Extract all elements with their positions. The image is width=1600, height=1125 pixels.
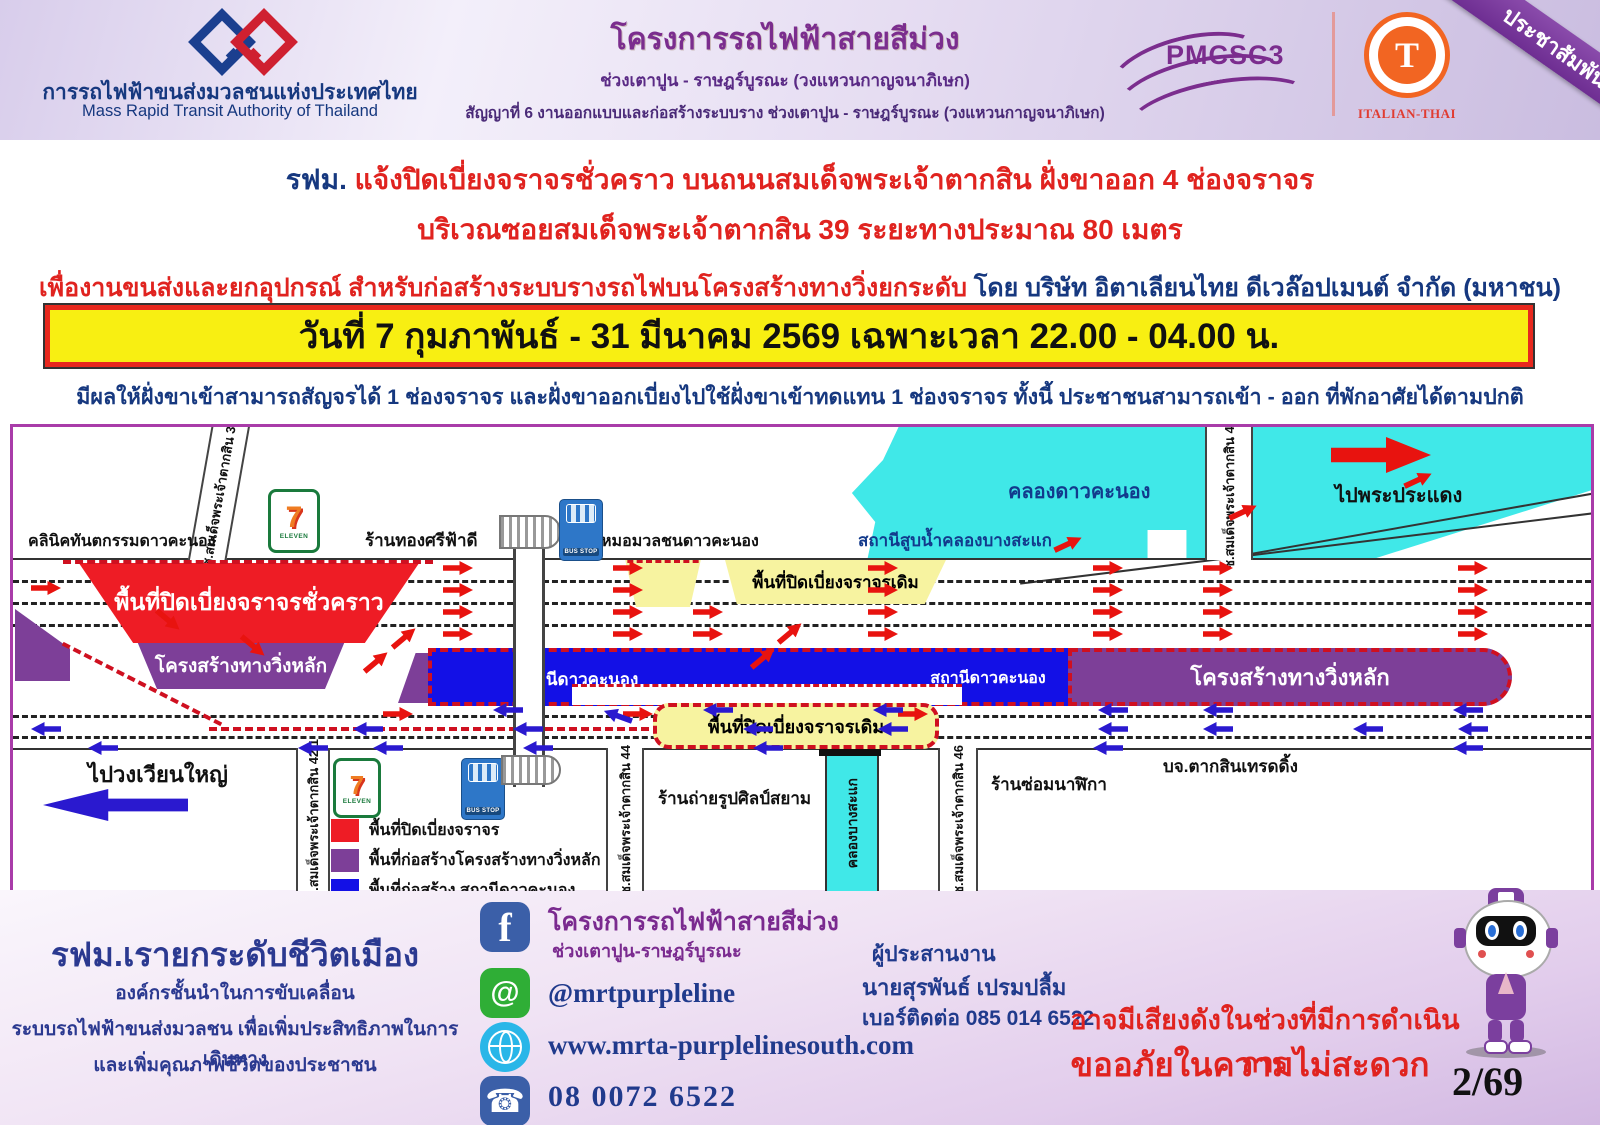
footer: รฟม.เรายกระดับชีวิตเมือง องค์กรชั้นนำในก… <box>0 890 1600 1125</box>
announcement: รฟม. แจ้งปิดเบี่ยงจราจรชั่วคราว บนถนนสมเ… <box>0 140 1600 424</box>
italian-thai-label: ITALIAN-THAI <box>1352 106 1462 122</box>
announce-line-3: เพื่องานขนส่งและยกอุปกรณ์ สำหรับก่อสร้าง… <box>0 268 1600 308</box>
red-traffic-arrow-icon <box>1458 605 1488 619</box>
red-traffic-arrow-icon <box>1093 583 1123 597</box>
red-traffic-arrow-icon <box>443 561 473 575</box>
red-traffic-arrow-icon <box>613 627 643 641</box>
red-traffic-arrow-icon <box>1458 561 1488 575</box>
red-traffic-arrow-icon <box>1226 499 1259 524</box>
red-traffic-arrow-icon <box>868 583 898 597</box>
slogan-4: และเพิ่มคุณภาพชีวิตของประชาชน <box>20 1050 450 1080</box>
blue-traffic-arrow-icon <box>1203 722 1233 736</box>
line-icon[interactable]: @ <box>480 968 530 1018</box>
phone-icon: ☎ <box>480 1076 530 1125</box>
blue-traffic-arrow-icon <box>1458 722 1488 736</box>
red-traffic-arrow-icon <box>237 631 269 661</box>
red-traffic-arrow-icon <box>1203 605 1233 619</box>
blue-traffic-arrow-icon <box>1453 703 1483 717</box>
blue-traffic-arrow-icon <box>88 741 118 755</box>
project-heading: โครงการรถไฟฟ้าสายสีม่วง ช่วงเตาปูน - ราษ… <box>445 16 1125 125</box>
slogan-main: รฟม.เรายกระดับชีวิตเมือง <box>20 928 450 981</box>
globe-icon <box>480 1022 530 1072</box>
traffic-arrows <box>13 427 1591 891</box>
blue-traffic-arrow-icon <box>1098 703 1128 717</box>
red-traffic-arrow-icon <box>1093 561 1123 575</box>
phone-number[interactable]: 08 0072 6522 <box>548 1080 737 1114</box>
red-traffic-arrow-icon <box>443 583 473 597</box>
poster: การรถไฟฟ้าขนส่งมวลชนแห่งประเทศไทย Mass R… <box>0 0 1600 1125</box>
red-traffic-arrow-icon <box>868 561 898 575</box>
website[interactable]: www.mrta-purplelinesouth.com <box>548 1030 914 1061</box>
header: การรถไฟฟ้าขนส่งมวลชนแห่งประเทศไทย Mass R… <box>0 0 1600 140</box>
blue-traffic-arrow-icon <box>373 741 403 755</box>
facebook-icon[interactable]: f <box>480 902 530 952</box>
red-traffic-arrow-icon <box>693 627 723 641</box>
blue-traffic-arrow-icon <box>878 722 908 736</box>
blue-traffic-arrow-icon <box>703 703 733 717</box>
line-id[interactable]: @mrtpurpleline <box>548 978 735 1009</box>
traffic-map: ซ.สมเด็จพระเจ้าตากสิน 39 ซ.สมเด็จพระเจ้า… <box>10 424 1594 894</box>
red-traffic-arrow-icon <box>1203 583 1233 597</box>
blue-traffic-arrow-icon <box>1453 741 1483 755</box>
red-traffic-arrow-icon <box>1203 627 1233 641</box>
red-traffic-arrow-icon <box>747 643 779 673</box>
facebook-sub: ช่วงเตาปูน-ราษฎร์บูรณะ <box>552 936 742 965</box>
red-traffic-arrow-icon <box>383 707 413 721</box>
red-traffic-arrow-icon <box>388 623 420 653</box>
red-traffic-arrow-icon <box>868 605 898 619</box>
blue-traffic-arrow-icon <box>513 722 543 736</box>
red-traffic-arrow-icon <box>443 627 473 641</box>
blue-traffic-arrow-icon <box>523 741 553 755</box>
blue-traffic-arrow-icon <box>1093 741 1123 755</box>
red-traffic-arrow-icon <box>1401 467 1434 492</box>
mascot-robot <box>1438 888 1574 1068</box>
red-traffic-arrow-icon <box>868 627 898 641</box>
pmcsc3-logo-icon: PMCSC3 <box>1108 18 1323 118</box>
blue-traffic-arrow-icon <box>753 741 783 755</box>
red-traffic-arrow-icon <box>1093 605 1123 619</box>
red-traffic-arrow-icon <box>613 583 643 597</box>
red-traffic-arrow-icon <box>31 581 61 595</box>
blue-traffic-arrow-icon <box>743 722 773 736</box>
red-traffic-arrow-icon <box>152 605 184 635</box>
blue-traffic-arrow-icon <box>1098 722 1128 736</box>
mrta-logo-icon <box>190 6 300 74</box>
red-traffic-arrow-icon <box>360 647 392 677</box>
header-divider <box>1332 12 1335 116</box>
contract-line: สัญญาที่ 6 งานออกแบบและก่อสร้างระบบราง ช… <box>445 100 1125 125</box>
red-traffic-arrow-icon <box>1458 627 1488 641</box>
apology-notice: ขออภัยในความไม่สะดวก <box>1050 1038 1450 1091</box>
project-title: โครงการรถไฟฟ้าสายสีม่วง <box>445 16 1125 63</box>
coordinator-title: ผู้ประสานงาน <box>872 938 996 971</box>
blue-traffic-arrow-icon <box>1203 703 1233 717</box>
red-traffic-arrow-icon <box>1093 627 1123 641</box>
red-traffic-arrow-icon <box>693 605 723 619</box>
bus-stop-icon: BUS STOP <box>559 499 603 561</box>
announce-line-1: รฟม. แจ้งปิดเบี่ยงจราจรชั่วคราว บนถนนสมเ… <box>0 158 1600 202</box>
pmcsc3-label: PMCSC3 <box>1166 40 1285 71</box>
red-traffic-arrow-icon <box>1203 561 1233 575</box>
red-traffic-arrow-icon <box>1458 583 1488 597</box>
announce-line-2: บริเวณซอยสมเด็จพระเจ้าตากสิน 39 ระยะทางป… <box>0 208 1600 252</box>
red-traffic-arrow-icon <box>613 605 643 619</box>
blue-traffic-arrow-icon <box>493 703 523 717</box>
blue-traffic-arrow-icon <box>31 722 61 736</box>
coordinator-name: นายสุรพันธ์ เปรมปลื้ม <box>862 970 1066 1005</box>
traffic-note: มีผลให้ฝั่งขาเข้าสามารถสัญจรได้ 1 ช่องจร… <box>0 380 1600 414</box>
slogan-2: องค์กรชั้นนำในการขับเคลื่อน <box>20 978 450 1008</box>
red-traffic-arrow-icon <box>443 605 473 619</box>
blue-traffic-arrow-icon <box>1353 722 1383 736</box>
date-banner: วันที่ 7 กุมภาพันธ์ - 31 มีนาคม 2569 เฉพ… <box>45 305 1533 367</box>
blue-traffic-arrow-icon <box>298 741 328 755</box>
blue-traffic-arrow-icon <box>353 722 383 736</box>
red-traffic-arrow-icon <box>774 618 806 648</box>
italian-thai-logo-icon: T ITALIAN-THAI <box>1352 10 1462 130</box>
red-traffic-arrow-icon <box>613 561 643 575</box>
project-subtitle: ช่วงเตาปูน - ราษฎร์บูรณะ (วงแหวนกาญจนาภิ… <box>445 67 1125 94</box>
red-traffic-arrow-icon <box>1051 531 1084 556</box>
org-name-english: Mass Rapid Transit Authority of Thailand <box>10 102 450 121</box>
